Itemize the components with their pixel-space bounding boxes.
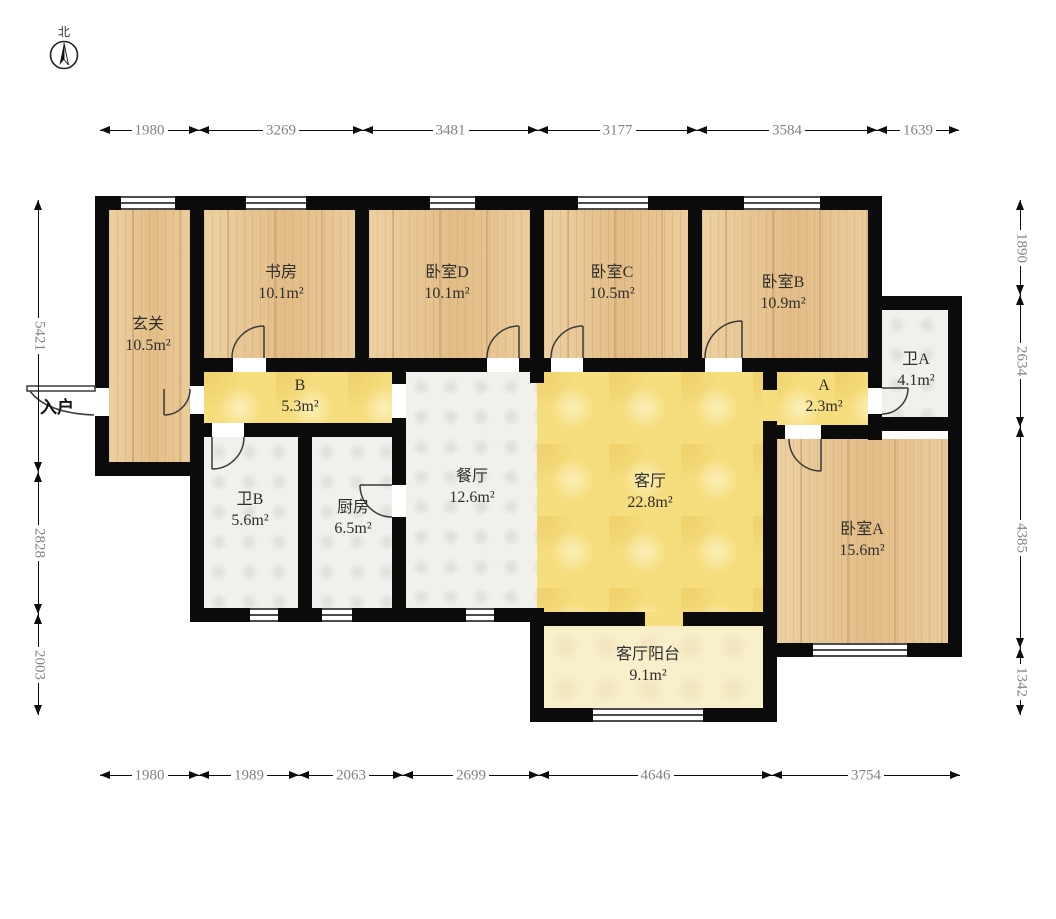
label-bedroomC: 卧室C10.5m² bbox=[589, 262, 634, 304]
dim-label: 3754 bbox=[848, 768, 884, 785]
compass-north-label: 北 bbox=[46, 26, 82, 39]
dim-segment: 1342 bbox=[1020, 648, 1021, 715]
dim-segment: 2634 bbox=[1020, 295, 1021, 427]
label-bathA: 卫A4.1m² bbox=[897, 349, 934, 391]
dim-label: 1639 bbox=[900, 123, 936, 140]
entry-label: 入户 bbox=[40, 393, 74, 418]
dim-segment: 3754 bbox=[772, 775, 960, 776]
dim-label: 2063 bbox=[333, 768, 369, 785]
north-arrow-icon bbox=[48, 39, 80, 71]
label-kitchen: 厨房6.5m² bbox=[334, 497, 371, 539]
dim-label: 1980 bbox=[132, 123, 168, 140]
label-bedroomB: 卧室B10.9m² bbox=[760, 272, 805, 314]
label-shufang: 书房10.1m² bbox=[258, 262, 303, 304]
dim-label: 1890 bbox=[1013, 230, 1030, 266]
dim-segment: 2828 bbox=[38, 472, 39, 614]
label-living: 客厅22.8m² bbox=[627, 471, 672, 513]
dim-segment: 1989 bbox=[199, 775, 299, 776]
label-bedroomD: 卧室D10.1m² bbox=[424, 262, 469, 304]
dim-segment: 2003 bbox=[38, 614, 39, 715]
dim-segment: 2699 bbox=[403, 775, 539, 776]
dim-label: 3584 bbox=[769, 123, 805, 140]
floor-plan: 北 bbox=[0, 0, 1056, 919]
dim-label: 5421 bbox=[31, 318, 48, 354]
label-hallA: A2.3m² bbox=[805, 375, 842, 417]
door-arc bbox=[212, 437, 244, 469]
dim-segment: 3481 bbox=[363, 130, 538, 131]
dim-label: 3269 bbox=[263, 123, 299, 140]
dim-segment: 1980 bbox=[100, 775, 199, 776]
label-bedroomA: 卧室A15.6m² bbox=[839, 519, 884, 561]
dim-label: 3481 bbox=[433, 123, 469, 140]
dim-label: 1342 bbox=[1013, 664, 1030, 700]
door-arc bbox=[164, 389, 190, 415]
label-bathB: 卫B5.6m² bbox=[231, 489, 268, 531]
door-arc bbox=[789, 439, 821, 471]
dim-segment: 3584 bbox=[697, 130, 877, 131]
dim-segment: 4646 bbox=[539, 775, 772, 776]
label-dining: 餐厅12.6m² bbox=[449, 466, 494, 508]
dim-segment: 1980 bbox=[100, 130, 199, 131]
door-arc bbox=[551, 326, 583, 358]
dim-label: 2634 bbox=[1013, 343, 1030, 379]
dim-segment: 4385 bbox=[1020, 427, 1021, 648]
dim-segment: 3269 bbox=[199, 130, 363, 131]
dim-label: 2828 bbox=[31, 525, 48, 561]
dim-segment: 5421 bbox=[38, 200, 39, 472]
label-balcony: 客厅阳台9.1m² bbox=[616, 644, 680, 686]
compass: 北 bbox=[46, 26, 82, 76]
dim-segment: 1890 bbox=[1020, 200, 1021, 295]
label-xuanguan: 玄关10.5m² bbox=[125, 314, 170, 356]
dim-label: 2699 bbox=[453, 768, 489, 785]
dim-label: 4646 bbox=[638, 768, 674, 785]
door-arc bbox=[487, 326, 519, 358]
dim-label: 4385 bbox=[1013, 520, 1030, 556]
dim-segment: 3177 bbox=[538, 130, 697, 131]
label-hallB: B5.3m² bbox=[281, 375, 318, 417]
dim-label: 1980 bbox=[132, 768, 168, 785]
door-arc bbox=[232, 326, 264, 358]
door-arc bbox=[882, 388, 908, 414]
dim-segment: 1639 bbox=[877, 130, 959, 131]
door-arc bbox=[705, 321, 742, 358]
dim-segment: 2063 bbox=[299, 775, 403, 776]
dim-label: 2003 bbox=[31, 647, 48, 683]
dim-label: 1989 bbox=[231, 768, 267, 785]
dim-label: 3177 bbox=[600, 123, 636, 140]
